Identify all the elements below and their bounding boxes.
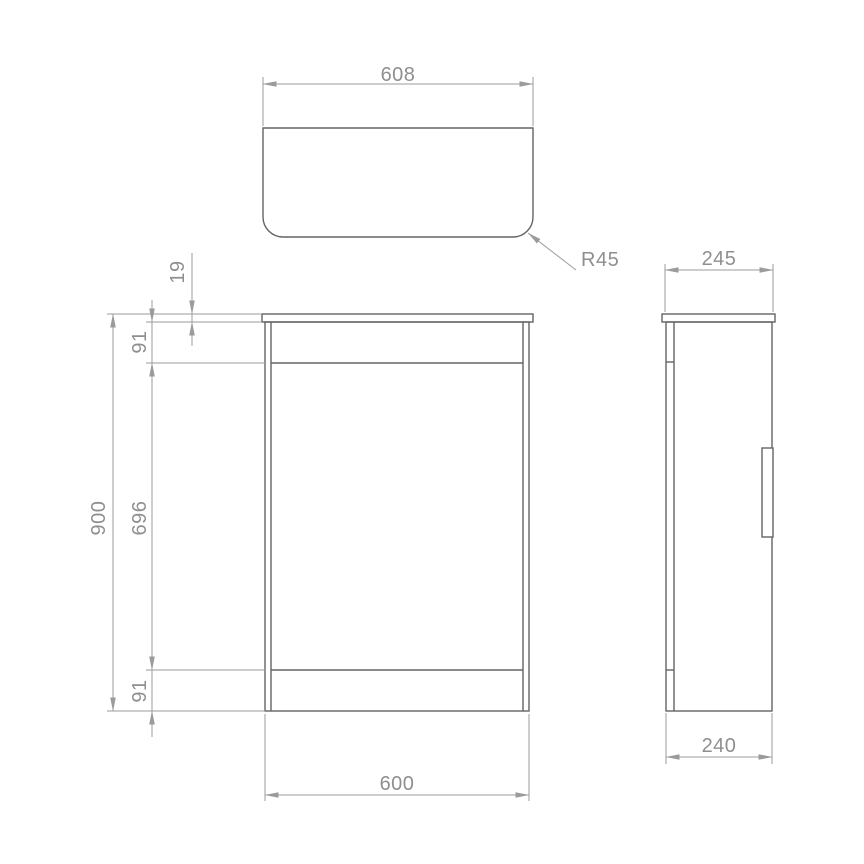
cabinet-front-body: [265, 322, 529, 711]
dim-depth-top: 245: [665, 248, 773, 312]
radius-leader-line: [528, 233, 576, 270]
dim-width-bottom: 600: [265, 714, 529, 801]
countertop-side: [662, 314, 775, 322]
dim-label-overall-height: 900: [88, 501, 110, 536]
countertop-plan-outline: [263, 128, 533, 237]
dim-label-door-height: 696: [129, 501, 151, 536]
dim-countertop-thickness: 19: [167, 253, 192, 346]
dim-label-plinth: 91: [129, 679, 151, 702]
side-view: 245 240: [662, 248, 775, 764]
dim-label-countertop-thickness: 19: [167, 260, 189, 283]
dim-label-top-rail: 91: [129, 330, 151, 353]
front-view: 900 19 91 696 91: [88, 253, 533, 801]
dim-door-height: 696: [129, 363, 152, 670]
technical-drawing: 608 R45 900 19: [0, 0, 864, 864]
dim-depth-bottom: 240: [666, 713, 772, 764]
dim-label-corner-radius: R45: [581, 249, 619, 271]
dim-top-rail-height: 91: [129, 300, 152, 363]
top-view: 608 R45: [263, 64, 619, 271]
dim-label-bottom-depth: 240: [702, 735, 737, 757]
dim-label-top-width: 608: [381, 64, 416, 86]
dim-plinth-height: 91: [129, 670, 152, 737]
dim-overall-height: 900: [88, 314, 113, 711]
cabinet-side-body: [666, 322, 772, 711]
dim-width-top: 608: [263, 64, 533, 126]
dim-corner-radius: R45: [528, 233, 619, 271]
dim-label-bottom-width: 600: [380, 773, 415, 795]
dim-label-top-depth: 245: [702, 248, 737, 270]
handle-profile: [762, 448, 773, 537]
countertop-front: [262, 314, 533, 322]
